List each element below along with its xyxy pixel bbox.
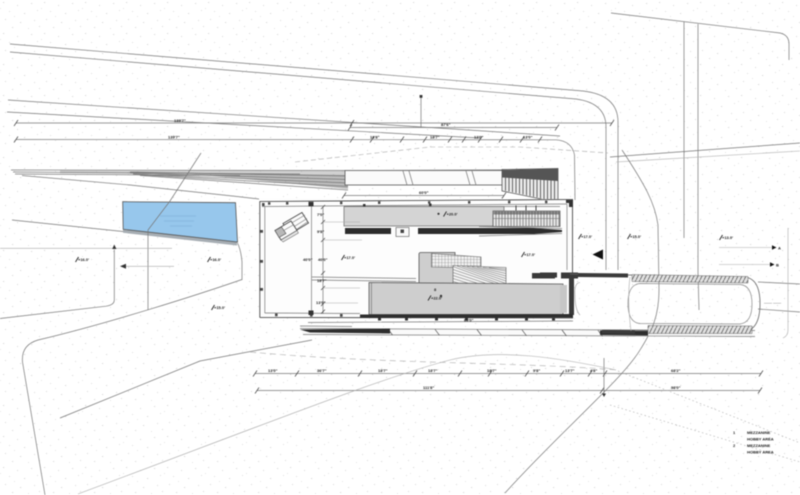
svg-text:+13.0': +13.0' <box>722 235 733 240</box>
svg-text:18'7": 18'7" <box>487 368 497 373</box>
svg-text:MEZZANINE: MEZZANINE <box>747 430 771 435</box>
svg-text:18'7": 18'7" <box>430 135 440 140</box>
svg-text:HOBBY AREA: HOBBY AREA <box>747 437 774 442</box>
svg-text:13'0": 13'0" <box>523 135 533 140</box>
svg-text:18'8": 18'8" <box>370 135 380 140</box>
svg-text:+15.0': +15.0' <box>214 305 225 310</box>
svg-text:87'6": 87'6" <box>441 122 451 127</box>
svg-text:111'8": 111'8" <box>423 385 434 390</box>
svg-text:+16.0': +16.0' <box>210 257 221 262</box>
svg-text:+17.0': +17.0' <box>581 234 592 239</box>
svg-text:+16.0': +16.0' <box>78 257 89 262</box>
svg-text:13'0": 13'0" <box>316 300 326 305</box>
svg-text:+15.0': +15.0' <box>630 234 641 239</box>
svg-text:9'8": 9'8" <box>533 368 540 373</box>
svg-text:+22.0': +22.0' <box>431 296 442 301</box>
svg-text:40'0": 40'0" <box>318 257 328 262</box>
svg-text:B: B <box>776 263 779 268</box>
svg-text:36'7": 36'7" <box>317 368 327 373</box>
svg-text:4'8": 4'8" <box>590 368 597 373</box>
svg-text:18'7": 18'7" <box>428 368 438 373</box>
svg-text:139'7": 139'7" <box>168 135 180 140</box>
svg-text:A: A <box>778 246 781 251</box>
svg-text:139'7": 139'7" <box>174 118 186 123</box>
svg-text:40'0": 40'0" <box>303 257 313 262</box>
svg-text:18'7": 18'7" <box>317 278 327 283</box>
svg-text:13'0": 13'0" <box>268 368 278 373</box>
svg-text:60'0": 60'0" <box>464 318 474 323</box>
svg-text:60'0": 60'0" <box>419 190 429 195</box>
svg-text:—— ——: —— —— <box>764 300 781 305</box>
svg-text:HOBBY AREA: HOBBY AREA <box>747 450 774 455</box>
svg-text:13'0": 13'0" <box>474 135 484 140</box>
svg-text:98'0": 98'0" <box>671 385 681 390</box>
svg-text:+17.0': +17.0' <box>524 252 535 257</box>
svg-text:68'2": 68'2" <box>671 368 681 373</box>
svg-text:13'7": 13'7" <box>565 368 575 373</box>
svg-text:9'8": 9'8" <box>317 229 324 234</box>
svg-text:+17.0': +17.0' <box>344 255 355 260</box>
svg-text:18'7": 18'7" <box>378 368 388 373</box>
svg-text:MEZZANINE: MEZZANINE <box>747 443 771 448</box>
svg-text:7'0": 7'0" <box>317 212 324 217</box>
svg-text:+20.0': +20.0' <box>447 212 458 217</box>
